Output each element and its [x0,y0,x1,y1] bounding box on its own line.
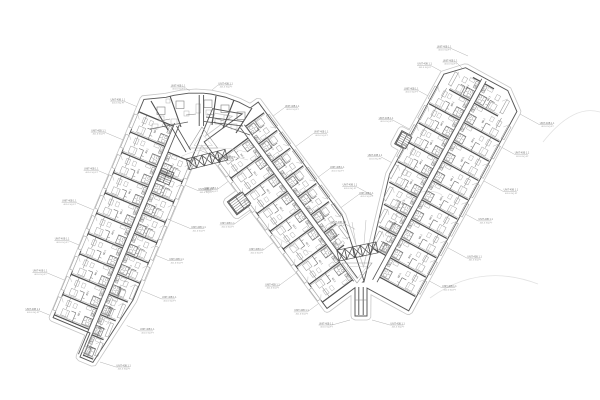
svg-text:401.6 SQ.FT: 401.6 SQ.FT [222,227,235,229]
svg-text:UNIT-40B 1.1: UNIT-40B 1.1 [443,59,458,62]
svg-text:UNIT-40B 1.1: UNIT-40B 1.1 [314,131,329,134]
svg-text:UNIT-40B 1.1: UNIT-40B 1.1 [390,322,405,325]
svg-text:401.6 SQ.FT: 401.6 SQ.FT [480,223,493,225]
svg-text:401.6 SQ.FT: 401.6 SQ.FT [444,64,457,66]
svg-text:UNIT-40B 1.1: UNIT-40B 1.1 [249,248,264,251]
svg-text:UNIT-40B 1.1: UNIT-40B 1.1 [171,84,186,87]
svg-text:UNIT-40B 1.1: UNIT-40B 1.1 [265,283,280,286]
svg-text:401.6 SQ.FT: 401.6 SQ.FT [315,135,328,137]
svg-text:UNIT-40B 1.1: UNIT-40B 1.1 [91,129,106,132]
svg-text:401.6 SQ.FT: 401.6 SQ.FT [93,134,106,136]
svg-text:401.6 SQ.FT: 401.6 SQ.FT [251,252,264,254]
svg-text:BD.1: BD.1 [398,272,403,278]
svg-text:401.6 SQ.FT: 401.6 SQ.FT [85,172,98,174]
svg-text:UNIT-40B 1.1: UNIT-40B 1.1 [294,309,309,312]
svg-text:401.6 SQ.FT: 401.6 SQ.FT [296,314,309,316]
svg-text:BD.1: BD.1 [129,188,133,194]
svg-text:BD.1: BD.1 [451,101,456,107]
svg-text:UNIT-40B 1.1: UNIT-40B 1.1 [140,328,155,331]
svg-text:UNIT-40B 1.1: UNIT-40B 1.1 [467,255,482,258]
svg-text:BD.1: BD.1 [441,120,446,126]
svg-text:BD.1: BD.1 [331,278,336,284]
svg-text:BD.1: BD.1 [279,207,284,213]
svg-text:BD.1: BD.1 [420,159,425,165]
svg-text:401.6 SQ.FT: 401.6 SQ.FT [331,170,344,172]
svg-text:401.6 SQ.FT: 401.6 SQ.FT [320,327,333,329]
svg-text:UNIT-40B 1.1: UNIT-40B 1.1 [332,221,347,224]
svg-text:401.6 SQ.FT: 401.6 SQ.FT [344,188,357,190]
svg-text:BD.1: BD.1 [103,249,107,255]
svg-text:UNIT-40B 1.1: UNIT-40B 1.1 [84,168,99,171]
svg-text:401.6 SQ.FT: 401.6 SQ.FT [193,230,206,232]
svg-text:UNIT-40B 1.1: UNIT-40B 1.1 [220,222,235,225]
svg-text:401.6 SQ.FT: 401.6 SQ.FT [205,191,218,193]
svg-text:401.6 SQ.FT: 401.6 SQ.FT [171,262,184,264]
svg-text:UNIT-40B 1.1: UNIT-40B 1.1 [62,200,77,203]
svg-text:401.6 SQ.FT: 401.6 SQ.FT [63,204,76,206]
svg-text:UNIT-40B 1.1: UNIT-40B 1.1 [33,270,48,273]
svg-text:401.6 SQ.FT: 401.6 SQ.FT [438,50,451,52]
svg-text:UNIT-40B 1.1: UNIT-40B 1.1 [417,63,432,66]
svg-text:UNIT-40B 1.1: UNIT-40B 1.1 [191,226,206,229]
svg-text:401.6 SQ.FT: 401.6 SQ.FT [405,92,418,94]
svg-text:BD.1: BD.1 [451,176,456,182]
svg-text:UNIT-40B 1.1: UNIT-40B 1.1 [540,122,555,125]
svg-text:401.6 SQ.FT: 401.6 SQ.FT [333,225,346,227]
svg-text:UNIT-40B 1.1: UNIT-40B 1.1 [442,285,457,288]
svg-text:UNIT-40B 1.1: UNIT-40B 1.1 [285,105,300,108]
svg-text:401.6 SQ.FT: 401.6 SQ.FT [444,289,457,291]
svg-text:401.6 SQ.FT: 401.6 SQ.FT [222,160,235,162]
svg-text:BD.1: BD.1 [430,140,435,146]
svg-text:BD.1: BD.1 [95,270,99,276]
svg-text:401.6 SQ.FT: 401.6 SQ.FT [141,333,154,335]
svg-text:401.6 SQ.FT: 401.6 SQ.FT [163,301,176,303]
svg-text:401.6 SQ.FT: 401.6 SQ.FT [220,87,233,89]
svg-text:401.6 SQ.FT: 401.6 SQ.FT [267,288,280,290]
svg-text:BD.1: BD.1 [137,168,141,174]
svg-text:401.6 SQ.FT: 401.6 SQ.FT [360,196,373,198]
svg-text:UNIT-40B 1.1: UNIT-40B 1.1 [478,218,493,221]
svg-text:UNIT-40B 1.1: UNIT-40B 1.1 [379,117,394,120]
svg-text:401.6 SQ.FT: 401.6 SQ.FT [34,274,47,276]
svg-text:BD.1: BD.1 [410,179,415,185]
svg-text:BD.1: BD.1 [318,260,323,266]
svg-text:401.6 SQ.FT: 401.6 SQ.FT [516,156,529,158]
svg-text:401.6 SQ.FT: 401.6 SQ.FT [380,121,393,123]
svg-text:401.6 SQ.FT: 401.6 SQ.FT [172,89,185,91]
svg-text:BD.1: BD.1 [482,118,487,124]
svg-text:401.6 SQ.FT: 401.6 SQ.FT [118,369,131,371]
svg-text:UNIT-40B 1.1: UNIT-40B 1.1 [220,156,235,159]
svg-text:401.6 SQ.FT: 401.6 SQ.FT [112,103,125,105]
svg-text:BD.1: BD.1 [86,290,90,296]
svg-text:UNIT-40B 1.1: UNIT-40B 1.1 [504,189,519,192]
svg-text:UNIT-40B 1.1: UNIT-40B 1.1 [116,364,131,367]
svg-text:UNIT-40B 1.1: UNIT-40B 1.1 [169,258,184,261]
svg-text:BD.1: BD.1 [112,229,116,235]
svg-text:401.6 SQ.FT: 401.6 SQ.FT [541,126,554,128]
svg-text:401.6 SQ.FT: 401.6 SQ.FT [369,158,382,160]
svg-text:401.6 SQ.FT: 401.6 SQ.FT [505,193,518,195]
svg-text:UNIT-40B 1.1: UNIT-40B 1.1 [204,187,219,190]
svg-text:BD.1: BD.1 [292,225,297,231]
svg-text:UNIT-40B 1.1: UNIT-40B 1.1 [404,87,419,90]
svg-text:BD.1: BD.1 [472,137,477,143]
svg-text:UNIT-40B 1.1: UNIT-40B 1.1 [330,166,345,169]
svg-text:UNIT-40B 1.1: UNIT-40B 1.1 [162,296,177,299]
svg-text:401.6 SQ.FT: 401.6 SQ.FT [56,242,69,244]
svg-text:UNIT-40B 1.1: UNIT-40B 1.1 [437,45,452,48]
svg-text:401.6 SQ.FT: 401.6 SQ.FT [419,67,432,69]
svg-text:UNIT-40B 1.1: UNIT-40B 1.1 [515,152,530,155]
svg-text:BD.1: BD.1 [419,234,424,240]
svg-text:UNIT-40B 1.1: UNIT-40B 1.1 [26,308,41,311]
svg-text:BD.1: BD.1 [78,310,82,316]
svg-text:BD.1: BD.1 [305,242,310,248]
svg-text:BD.1: BD.1 [430,214,435,220]
svg-text:UNIT-40B 1.1: UNIT-40B 1.1 [343,184,358,187]
svg-text:401.6 SQ.FT: 401.6 SQ.FT [392,327,405,329]
svg-text:BD.1: BD.1 [266,189,271,195]
svg-text:401.6 SQ.FT: 401.6 SQ.FT [286,109,299,111]
svg-text:401.6 SQ.FT: 401.6 SQ.FT [469,260,482,262]
svg-text:BD.1: BD.1 [409,253,414,259]
svg-text:UNIT-40B 1.1: UNIT-40B 1.1 [218,82,233,85]
svg-text:UNIT-40B 1.1: UNIT-40B 1.1 [111,98,126,101]
svg-text:UNIT-40B 1.1: UNIT-40B 1.1 [319,322,334,325]
svg-text:UNIT-40B 1.1: UNIT-40B 1.1 [368,154,383,157]
svg-text:401.6 SQ.FT: 401.6 SQ.FT [27,312,40,314]
svg-text:BD.1: BD.1 [461,156,466,162]
svg-text:BD.1: BD.1 [440,195,445,201]
svg-text:BD.1: BD.1 [120,209,124,215]
svg-text:BD.1: BD.1 [253,172,258,178]
svg-text:BD.1: BD.1 [146,148,150,154]
svg-text:UNIT-40B 1.1: UNIT-40B 1.1 [55,238,70,241]
